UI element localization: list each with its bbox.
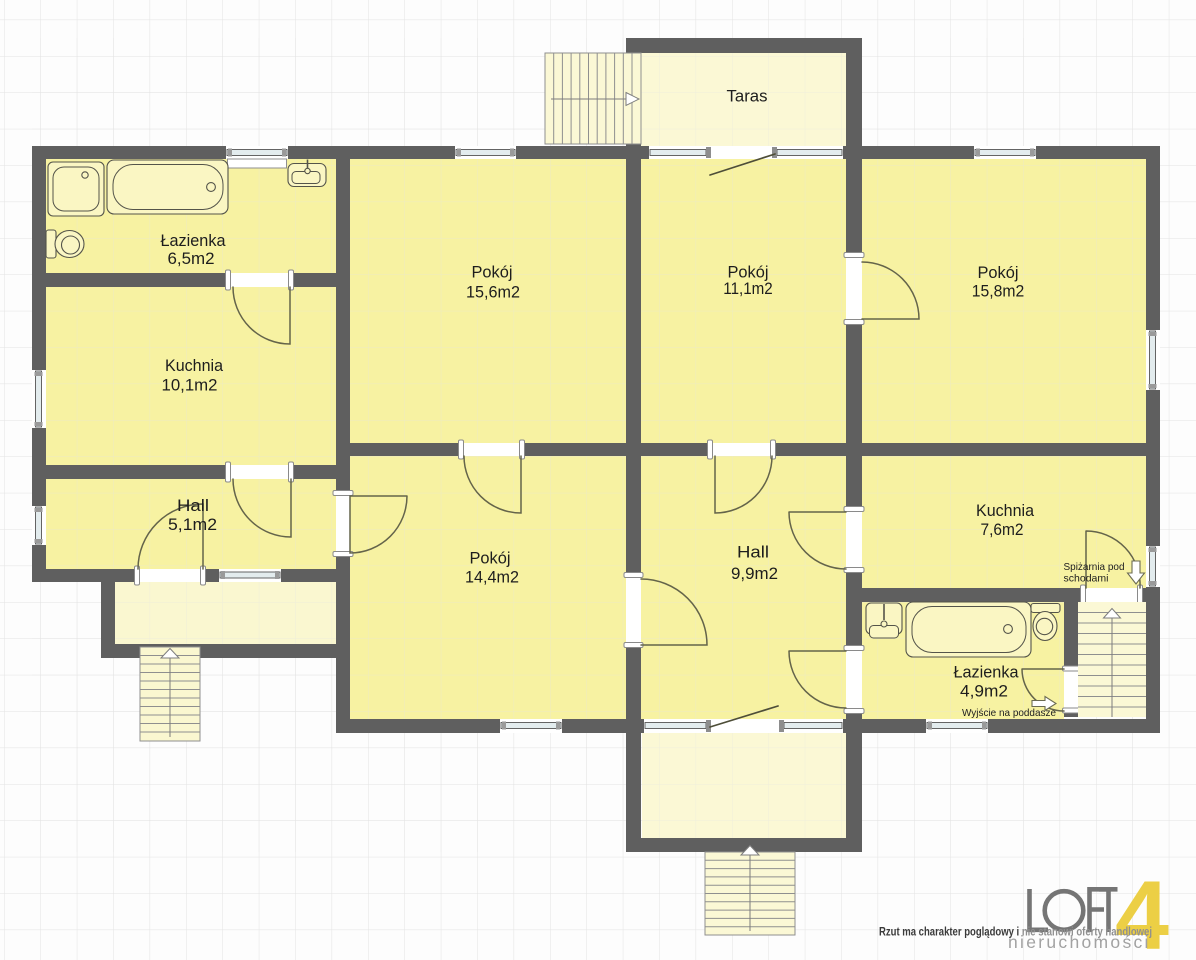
svg-text:15,6m2: 15,6m2: [466, 283, 520, 302]
svg-text:7,6m2: 7,6m2: [981, 520, 1024, 539]
svg-text:Kuchnia: Kuchnia: [976, 501, 1035, 520]
svg-text:14,4m2: 14,4m2: [465, 568, 519, 587]
svg-text:Łazienka: Łazienka: [161, 231, 227, 250]
svg-text:4,9m2: 4,9m2: [960, 682, 1008, 701]
svg-text:Łazienka: Łazienka: [954, 663, 1020, 682]
svg-text:9,9m2: 9,9m2: [731, 564, 778, 583]
svg-text:Taras: Taras: [727, 87, 768, 106]
svg-text:schodami: schodami: [1064, 573, 1109, 585]
svg-text:Hall: Hall: [737, 543, 769, 562]
svg-text:Pokój: Pokój: [472, 263, 513, 282]
svg-text:Spiżarnia pod: Spiżarnia pod: [1064, 561, 1125, 573]
svg-text:15,8m2: 15,8m2: [972, 282, 1025, 301]
svg-text:Pokój: Pokój: [470, 549, 511, 568]
svg-text:Pokój: Pokój: [978, 263, 1019, 282]
svg-text:6,5m2: 6,5m2: [168, 249, 215, 268]
svg-text:Kuchnia: Kuchnia: [165, 356, 224, 375]
svg-text:11,1m2: 11,1m2: [723, 279, 773, 298]
svg-text:Rzut ma charakter poglądowy i: Rzut ma charakter poglądowy i nie stanow…: [879, 927, 1152, 939]
svg-text:5,1m2: 5,1m2: [168, 515, 217, 534]
svg-text:Hall: Hall: [177, 496, 209, 515]
svg-text:Wyjście na poddasze: Wyjście na poddasze: [962, 707, 1056, 719]
svg-text:10,1m2: 10,1m2: [162, 376, 218, 395]
